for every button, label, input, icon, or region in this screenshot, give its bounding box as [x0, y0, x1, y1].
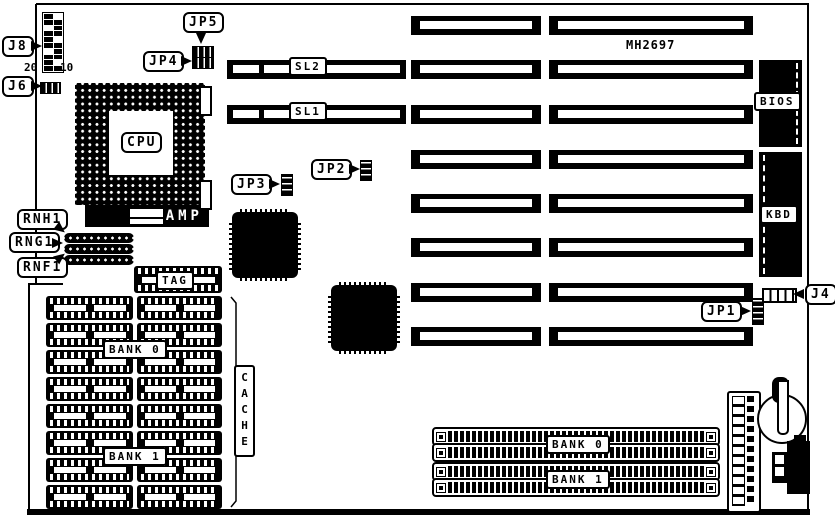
jp2-pointer: [349, 164, 360, 174]
expansion-slot: [549, 150, 753, 169]
jp1-callout: JP1: [701, 301, 742, 322]
amp-bar-mark1: [130, 209, 163, 217]
jp3-callout: JP3: [231, 174, 272, 195]
j4-connector: [762, 288, 797, 303]
j6-pointer: [31, 81, 42, 91]
din-connector-top-tab: [794, 435, 806, 442]
expansion-slot: [549, 60, 753, 79]
din-pin-2: [774, 466, 785, 477]
j4-callout: J4: [805, 284, 835, 305]
cache-sram-chip-bank1: [137, 404, 222, 428]
simm-bank0-label: BANK 0: [546, 435, 610, 454]
rng1-resistor-network: [64, 244, 134, 254]
jp2-jumper: [360, 160, 372, 181]
cache-sram-chip-bank1: [46, 404, 133, 428]
sl2-label: SL2: [289, 57, 327, 76]
expansion-slot: [549, 105, 753, 124]
expansion-slot: [549, 238, 753, 257]
jp5-pointer: [196, 33, 206, 44]
expansion-slot: [411, 60, 541, 79]
motherboard-diagram: 20 10 CPU AMP TAG SL2 SL1: [0, 0, 835, 520]
expansion-slot: [549, 194, 753, 213]
jp1-pointer: [740, 306, 751, 316]
simm-bank1-label: BANK 1: [546, 470, 610, 489]
j8-pointer: [31, 41, 42, 51]
j6-callout: J6: [2, 76, 34, 97]
expansion-slot: [411, 194, 541, 213]
din-pin-1: [774, 454, 785, 465]
rnf1-resistor-network: [64, 255, 134, 265]
cpu-label: CPU: [121, 132, 162, 153]
board-model-text: MH2697: [626, 38, 675, 52]
expansion-slot: [411, 238, 541, 257]
amp-label: AMP: [166, 208, 203, 224]
jp4-jumper: [192, 57, 214, 69]
jp3-pointer: [269, 179, 280, 189]
cache-label: CACHE: [234, 365, 255, 457]
kbd-label: KBD: [760, 205, 798, 224]
cpu-socket-tab-top: [199, 86, 212, 116]
expansion-slot: [411, 150, 541, 169]
expansion-slot: [411, 16, 541, 35]
cache-sram-chip-bank0: [137, 296, 222, 320]
amp-socket-bar: AMP: [85, 205, 209, 227]
expansion-slot: [411, 105, 541, 124]
cpu-socket-tab-bottom: [199, 180, 212, 210]
j4-pointer: [793, 289, 804, 299]
expansion-slot: [411, 327, 541, 346]
jp4-callout: JP4: [143, 51, 184, 72]
bios-label: BIOS: [754, 92, 801, 111]
cache-sram-chip-bank0: [137, 377, 222, 401]
power-connector: [727, 391, 761, 513]
cache-sram-chip-bank0: [46, 377, 133, 401]
rng1-pointer: [52, 238, 63, 248]
expansion-slot: [411, 283, 541, 302]
expansion-slot: [549, 327, 753, 346]
jp3-jumper: [281, 174, 293, 196]
jp2-callout: JP2: [311, 159, 352, 180]
cache-sram-chip-bank1: [46, 485, 133, 509]
din-connector-body: [787, 441, 810, 494]
tag-label: TAG: [156, 271, 194, 290]
j8-pin10-label: 10: [60, 61, 73, 74]
expansion-slot: [549, 283, 753, 302]
j8-callout: J8: [2, 36, 34, 57]
j8-pin20-label: 20: [24, 61, 37, 74]
cache-sram-chip-bank1: [137, 485, 222, 509]
board-edge-bottom: [27, 509, 810, 515]
sl1-label: SL1: [289, 102, 327, 121]
jp5-callout: JP5: [183, 12, 224, 33]
jp4-pointer: [181, 56, 192, 66]
battery-clip-slot: [777, 380, 789, 435]
amp-bar-mark2: [130, 219, 163, 224]
qfp-chip-2: [331, 285, 397, 351]
cache-sram-chip-bank0: [46, 296, 133, 320]
qfp-chip-1: [232, 212, 298, 278]
cache-bank0-label: BANK 0: [103, 340, 167, 359]
cache-bank1-label: BANK 1: [103, 447, 167, 466]
j6-jumper: [40, 82, 61, 94]
expansion-slot: [549, 16, 753, 35]
rnh1-resistor-network: [64, 233, 134, 243]
